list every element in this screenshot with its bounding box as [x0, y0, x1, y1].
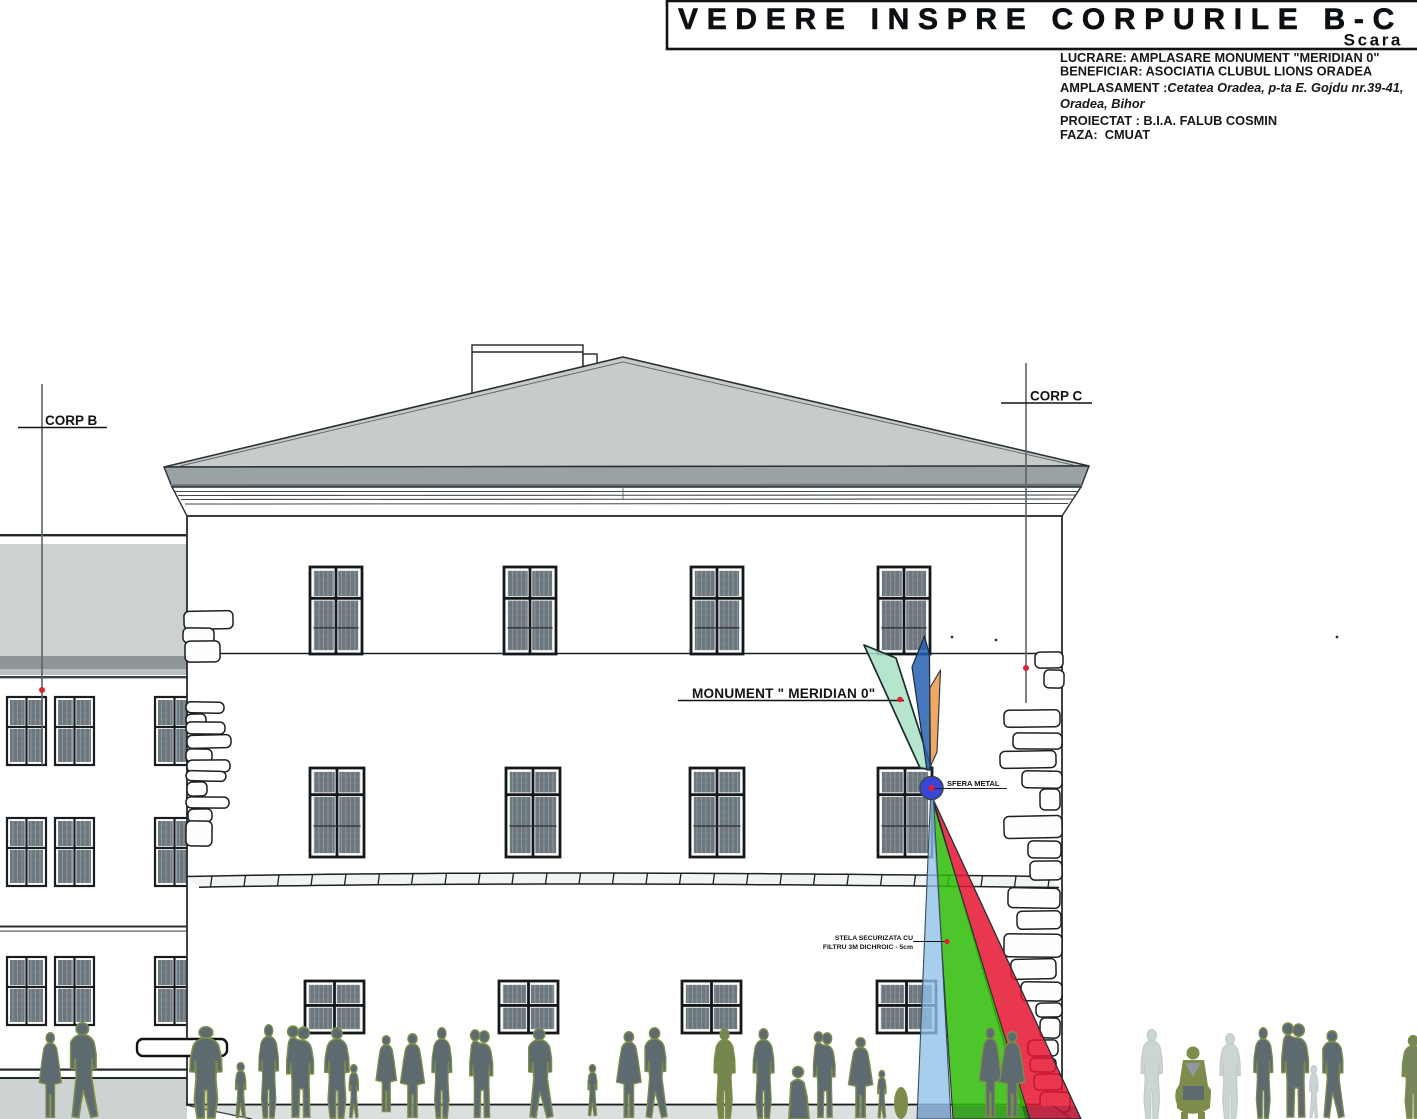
svg-text:MONUMENT " MERIDIAN 0": MONUMENT " MERIDIAN 0"	[692, 686, 875, 701]
svg-text:STELA SECURIZATA CU: STELA SECURIZATA CU	[835, 935, 913, 942]
svg-text:PROIECTAT : B.I.A. FALUB COSMI: PROIECTAT : B.I.A. FALUB COSMIN	[1060, 113, 1277, 128]
svg-text:CORP B: CORP B	[45, 413, 98, 428]
svg-text:VEDERE INSPRE CORPURILE B-C: VEDERE INSPRE CORPURILE B-C	[678, 3, 1403, 36]
svg-text:CORP C: CORP C	[1030, 389, 1083, 404]
svg-text:BENEFICIAR: ASOCIATIA CLUBUL L: BENEFICIAR: ASOCIATIA CLUBUL LIONS ORADE…	[1060, 64, 1372, 79]
svg-text:SFERA METAL: SFERA METAL	[947, 779, 1000, 788]
svg-text:AMPLASAMENT :Cetatea Oradea, p: AMPLASAMENT :Cetatea Oradea, p-ta E. Goj…	[1060, 80, 1403, 95]
svg-text:Oradea, Bihor: Oradea, Bihor	[1060, 96, 1146, 111]
svg-text:Scara: Scara	[1344, 31, 1403, 50]
svg-text:FAZA: CMUAT: FAZA: CMUAT	[1060, 127, 1150, 142]
svg-text:FILTRU 3M DICHROIC - 5cm: FILTRU 3M DICHROIC - 5cm	[823, 944, 913, 951]
